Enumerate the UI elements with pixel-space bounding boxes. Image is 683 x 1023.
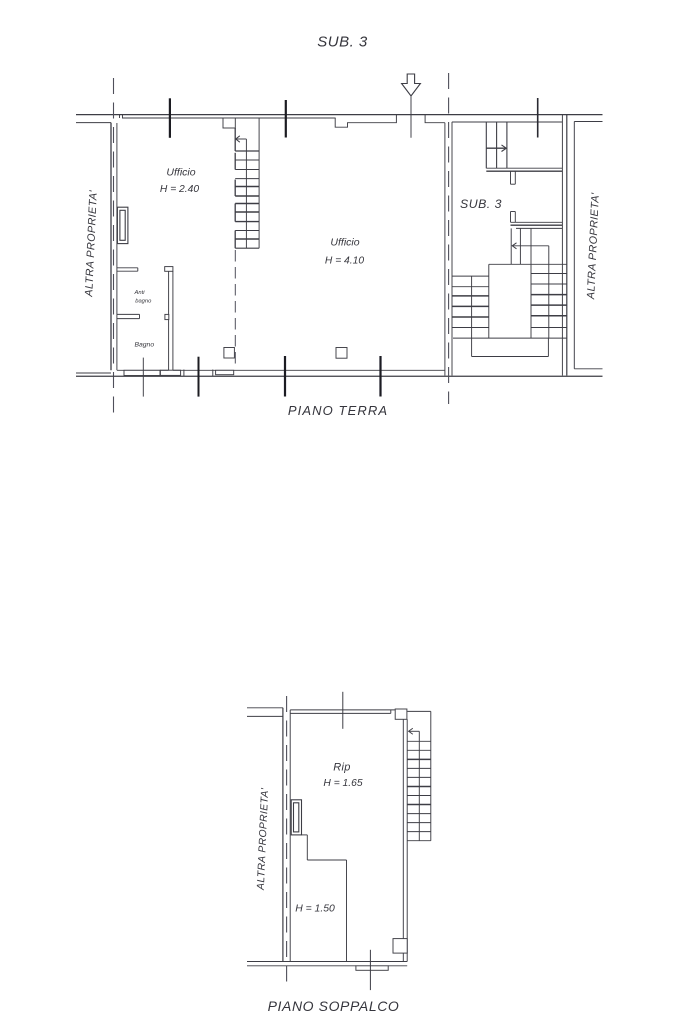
svg-text:Ufficio: Ufficio xyxy=(330,237,359,249)
svg-text:Bagno: Bagno xyxy=(134,342,154,349)
svg-text:H = 4.10: H = 4.10 xyxy=(325,255,364,266)
svg-text:SUB. 3: SUB. 3 xyxy=(460,197,502,211)
svg-text:ALTRA PROPRIETA': ALTRA PROPRIETA' xyxy=(83,189,100,298)
svg-text:H = 2.40: H = 2.40 xyxy=(160,184,199,195)
svg-text:H = 1.50: H = 1.50 xyxy=(295,904,335,915)
svg-text:ALTRA PROPRIETA': ALTRA PROPRIETA' xyxy=(585,192,602,301)
svg-text:Anti: Anti xyxy=(134,290,146,296)
svg-text:PIANO SOPPALCO: PIANO SOPPALCO xyxy=(268,998,400,1014)
svg-text:ALTRA PROPRIETA': ALTRA PROPRIETA' xyxy=(256,787,272,891)
svg-text:Rip: Rip xyxy=(333,762,350,774)
svg-text:SUB. 3: SUB. 3 xyxy=(317,34,368,51)
svg-text:H = 1.65: H = 1.65 xyxy=(323,778,362,789)
svg-text:PIANO TERRA: PIANO TERRA xyxy=(288,403,388,418)
svg-text:bagno: bagno xyxy=(135,299,152,305)
svg-text:Ufficio: Ufficio xyxy=(166,166,195,178)
